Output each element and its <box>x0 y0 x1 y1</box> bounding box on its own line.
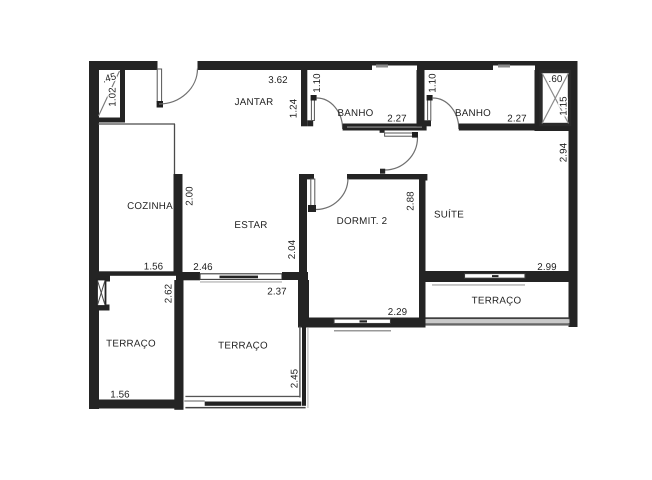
svg-text:BANHO: BANHO <box>455 108 491 119</box>
svg-text:1.02: 1.02 <box>108 87 119 106</box>
svg-text:2.29: 2.29 <box>388 307 407 318</box>
svg-text:2.99: 2.99 <box>537 262 556 273</box>
svg-text:1.15: 1.15 <box>559 96 570 116</box>
svg-text:SUÍTE: SUÍTE <box>434 209 464 221</box>
svg-text:.60: .60 <box>549 74 563 85</box>
svg-text:1.56: 1.56 <box>110 390 130 401</box>
svg-text:TERRAÇO: TERRAÇO <box>106 339 156 350</box>
svg-text:TERRAÇO: TERRAÇO <box>218 341 268 352</box>
svg-text:TERRAÇO: TERRAÇO <box>472 296 522 307</box>
svg-text:2.00: 2.00 <box>185 186 196 206</box>
svg-text:COZINHA: COZINHA <box>127 201 173 212</box>
svg-text:2.27: 2.27 <box>507 114 526 125</box>
svg-text:2.04: 2.04 <box>287 239 298 259</box>
svg-text:1.56: 1.56 <box>144 262 164 273</box>
svg-text:2.62: 2.62 <box>163 284 174 303</box>
svg-text:2.46: 2.46 <box>193 262 213 273</box>
svg-text:2.45: 2.45 <box>290 368 301 388</box>
svg-text:1.24: 1.24 <box>289 98 300 118</box>
svg-text:2.94: 2.94 <box>558 142 569 162</box>
svg-text:1.10: 1.10 <box>428 73 439 93</box>
svg-text:JANTAR: JANTAR <box>235 97 274 108</box>
svg-text:3.62: 3.62 <box>268 75 287 86</box>
svg-text:ESTAR: ESTAR <box>234 220 267 231</box>
svg-text:DORMIT. 2: DORMIT. 2 <box>337 216 388 227</box>
svg-text:2.88: 2.88 <box>406 191 417 211</box>
svg-text:1.10: 1.10 <box>312 73 323 93</box>
svg-text:2.27: 2.27 <box>387 114 406 125</box>
svg-text:2.37: 2.37 <box>267 287 286 298</box>
svg-text:BANHO: BANHO <box>337 108 373 119</box>
